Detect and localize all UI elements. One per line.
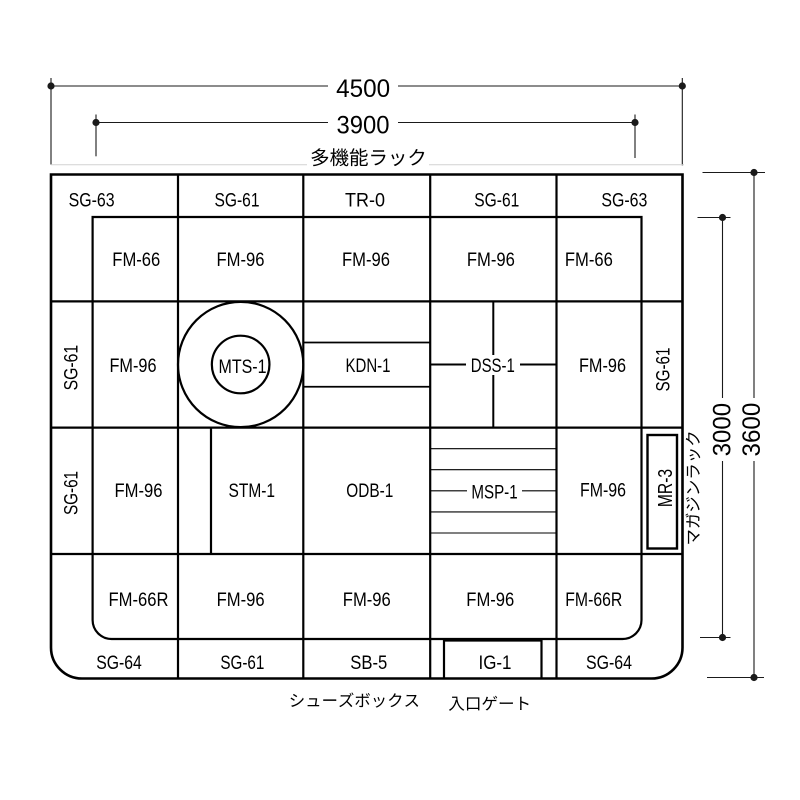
svg-text:SG-63: SG-63 xyxy=(69,190,115,211)
svg-text:3600: 3600 xyxy=(738,403,766,457)
svg-text:FM-96: FM-96 xyxy=(342,250,390,271)
svg-text:FM-66: FM-66 xyxy=(565,250,613,271)
svg-text:SG-64: SG-64 xyxy=(96,653,142,674)
svg-text:FM-96: FM-96 xyxy=(466,590,514,611)
svg-text:IG-1: IG-1 xyxy=(479,653,512,674)
svg-text:TR-0: TR-0 xyxy=(345,190,385,211)
svg-text:FM-96: FM-96 xyxy=(217,250,265,271)
svg-text:SG-64: SG-64 xyxy=(586,653,632,674)
svg-text:FM-96: FM-96 xyxy=(343,590,391,611)
svg-text:4500: 4500 xyxy=(336,75,390,103)
svg-text:STM-1: STM-1 xyxy=(229,481,276,502)
svg-text:SG-61: SG-61 xyxy=(215,190,260,211)
svg-text:FM-96: FM-96 xyxy=(579,356,626,377)
svg-text:FM-66: FM-66 xyxy=(112,250,160,271)
svg-text:FM-96: FM-96 xyxy=(580,481,626,502)
svg-text:FM-66R: FM-66R xyxy=(109,590,169,611)
svg-text:FM-96: FM-96 xyxy=(217,590,265,611)
svg-text:DSS-1: DSS-1 xyxy=(471,356,515,377)
svg-text:3000: 3000 xyxy=(708,403,736,456)
svg-text:SG-61: SG-61 xyxy=(61,345,82,391)
svg-text:SG-61: SG-61 xyxy=(474,190,519,211)
svg-text:FM-66R: FM-66R xyxy=(565,590,622,611)
svg-text:FM-96: FM-96 xyxy=(115,481,163,502)
svg-text:KDN-1: KDN-1 xyxy=(346,356,391,377)
svg-text:SG-61: SG-61 xyxy=(61,471,82,515)
svg-text:SB-5: SB-5 xyxy=(350,653,387,674)
svg-text:SG-61: SG-61 xyxy=(653,348,674,392)
svg-text:FM-96: FM-96 xyxy=(467,250,515,271)
svg-text:SG-61: SG-61 xyxy=(220,653,264,674)
svg-text:3900: 3900 xyxy=(337,112,390,140)
svg-text:SG-63: SG-63 xyxy=(601,190,647,211)
svg-text:FM-96: FM-96 xyxy=(110,356,157,377)
svg-text:ODB-1: ODB-1 xyxy=(346,481,393,502)
svg-text:MR-3: MR-3 xyxy=(654,469,677,507)
svg-text:MSP-1: MSP-1 xyxy=(471,483,517,504)
svg-text:MTS-1: MTS-1 xyxy=(219,357,267,378)
